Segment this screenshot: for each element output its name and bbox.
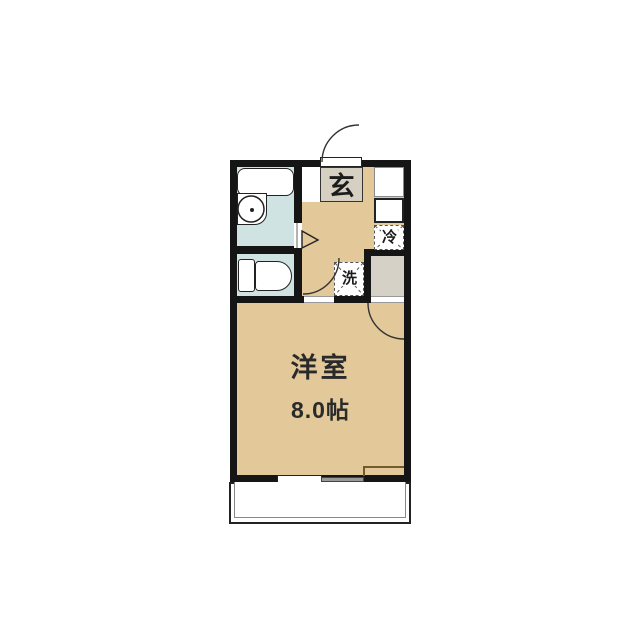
main-room-label: 洋室 8.0帖 — [237, 346, 404, 425]
main-room-name: 洋室 — [237, 346, 404, 385]
main-room-size: 8.0帖 — [237, 391, 404, 425]
washer-label: 洗 — [341, 271, 358, 286]
floor-plan: 玄 冷 洗 洋室 8.0帖 — [0, 0, 640, 640]
main-room-door-arc — [368, 303, 404, 339]
entrance-door-arc — [322, 125, 359, 162]
toilet-door-arc — [303, 258, 339, 294]
basin-drain-dot — [250, 208, 254, 212]
bathroom-door-marker — [302, 231, 318, 248]
door-swing-overlay — [0, 0, 640, 640]
refrigerator-label: 冷 — [381, 230, 398, 245]
